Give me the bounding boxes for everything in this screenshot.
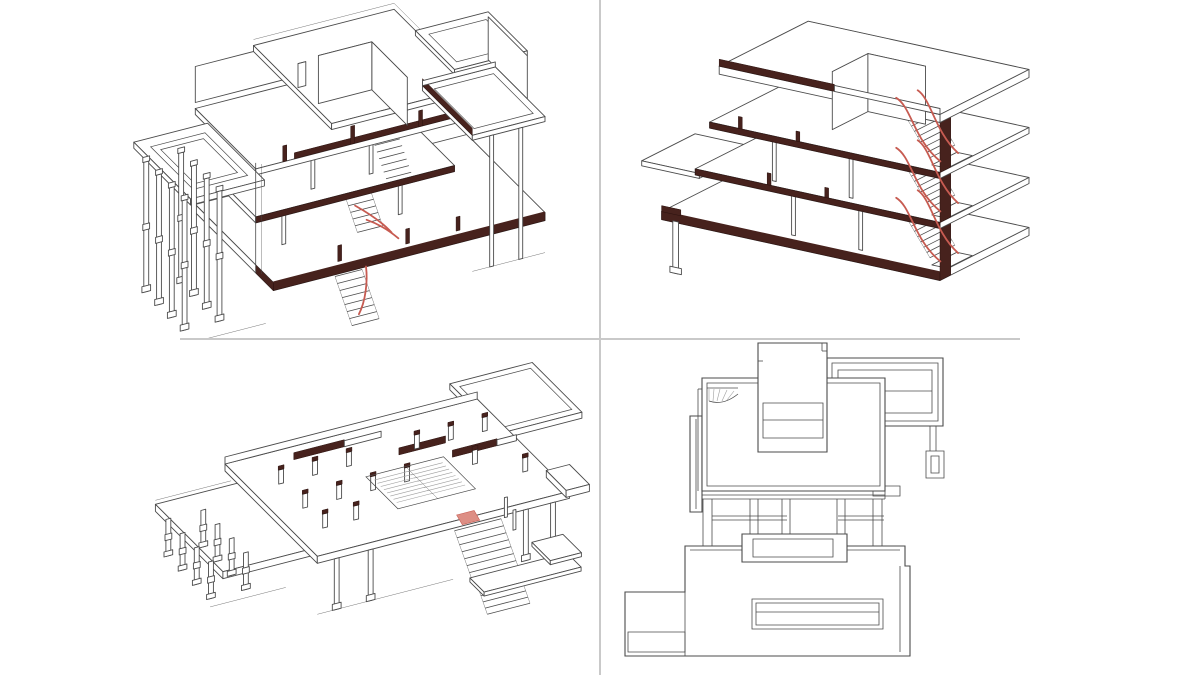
panel-roof-plan [600,339,1200,675]
floor-plate-axonometric-drawing [0,339,600,675]
panel-sectional-axonometric-northeast [600,0,1200,339]
cutaway-axonometric-drawing-2 [600,0,1200,339]
grid-divider-horizontal [180,338,1020,340]
roof-plan-drawing [600,339,1200,675]
drawing-grid [0,0,1200,675]
panel-floor-plate-axonometric [0,339,600,675]
cutaway-axonometric-drawing-1 [0,0,600,339]
panel-sectional-axonometric-southwest [0,0,600,339]
